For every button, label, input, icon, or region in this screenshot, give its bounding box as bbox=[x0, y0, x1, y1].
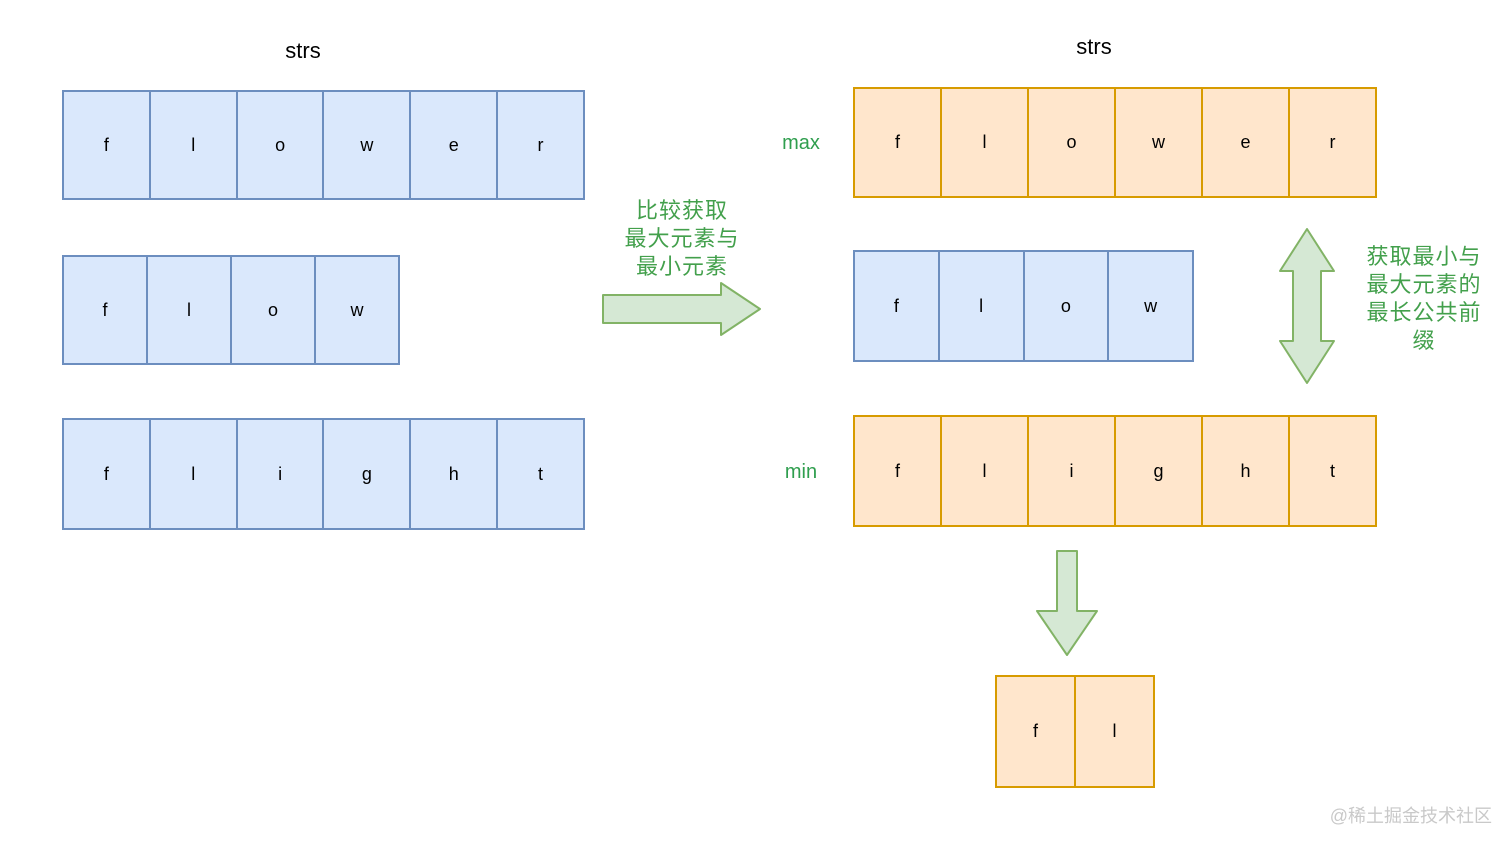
array-cell: f bbox=[64, 420, 149, 528]
left-array-flight: f l i g h t bbox=[62, 418, 585, 530]
compare-caption: 比较获取 最大元素与 最小元素 bbox=[597, 197, 767, 281]
result-array-fl: f l bbox=[995, 675, 1155, 788]
caption-line: 比较获取 bbox=[597, 197, 767, 225]
max-label: max bbox=[776, 131, 826, 155]
right-array-flow: f l o w bbox=[853, 250, 1194, 362]
down-block-arrow-icon bbox=[1035, 549, 1099, 657]
array-cell: f bbox=[855, 89, 940, 196]
array-cell: i bbox=[1027, 417, 1114, 525]
array-cell: e bbox=[1201, 89, 1288, 196]
array-cell: e bbox=[409, 92, 496, 198]
left-array-flow: f l o w bbox=[62, 255, 400, 365]
array-cell: l bbox=[146, 257, 230, 363]
array-cell: l bbox=[940, 89, 1027, 196]
array-cell: r bbox=[1288, 89, 1375, 196]
array-cell: o bbox=[1027, 89, 1114, 196]
array-cell: f bbox=[855, 252, 938, 360]
array-cell: l bbox=[940, 417, 1027, 525]
array-cell: o bbox=[230, 257, 314, 363]
caption-line: 缀 bbox=[1350, 327, 1498, 355]
array-cell: t bbox=[1288, 417, 1375, 525]
array-cell: l bbox=[149, 420, 236, 528]
array-cell: w bbox=[322, 92, 409, 198]
left-array-flower: f l o w e r bbox=[62, 90, 585, 200]
array-cell: f bbox=[855, 417, 940, 525]
caption-line: 最大元素的 bbox=[1350, 271, 1498, 299]
left-strs-title: strs bbox=[238, 38, 368, 64]
watermark: @稀土掘金技术社区 bbox=[1330, 802, 1492, 828]
array-cell: g bbox=[322, 420, 409, 528]
caption-line: 最长公共前 bbox=[1350, 299, 1498, 327]
array-cell: g bbox=[1114, 417, 1201, 525]
array-cell: w bbox=[314, 257, 398, 363]
min-label: min bbox=[776, 460, 826, 484]
array-cell: h bbox=[1201, 417, 1288, 525]
caption-line: 最小元素 bbox=[597, 253, 767, 281]
array-cell: w bbox=[1114, 89, 1201, 196]
array-cell: f bbox=[64, 92, 149, 198]
array-cell: l bbox=[1074, 677, 1153, 786]
array-cell: o bbox=[236, 92, 323, 198]
right-block-arrow-icon bbox=[601, 280, 763, 338]
right-array-min-flight: f l i g h t bbox=[853, 415, 1377, 527]
array-cell: t bbox=[496, 420, 583, 528]
right-strs-title: strs bbox=[1029, 34, 1159, 60]
lcp-caption: 获取最小与 最大元素的 最长公共前 缀 bbox=[1350, 243, 1498, 355]
array-cell: h bbox=[409, 420, 496, 528]
caption-line: 获取最小与 bbox=[1350, 243, 1498, 271]
diagram-canvas: strs f l o w e r f l o w f l i g h t 比较获… bbox=[0, 0, 1512, 846]
array-cell: f bbox=[64, 257, 146, 363]
array-cell: i bbox=[236, 420, 323, 528]
right-array-max-flower: f l o w e r bbox=[853, 87, 1377, 198]
array-cell: f bbox=[997, 677, 1074, 786]
caption-line: 最大元素与 bbox=[597, 225, 767, 253]
array-cell: r bbox=[496, 92, 583, 198]
array-cell: o bbox=[1023, 252, 1108, 360]
vertical-double-arrow-icon bbox=[1278, 227, 1336, 385]
array-cell: l bbox=[149, 92, 236, 198]
array-cell: w bbox=[1107, 252, 1192, 360]
array-cell: l bbox=[938, 252, 1023, 360]
